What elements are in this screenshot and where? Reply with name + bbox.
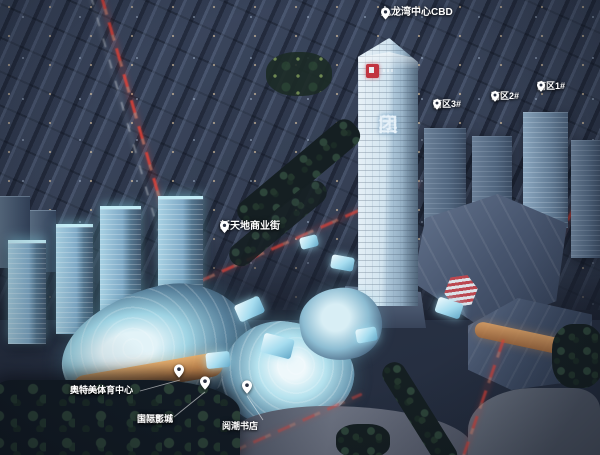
label-text: 九龙湾中心CBD [381, 7, 453, 19]
label-text: 奥特美体育中心 [70, 385, 133, 396]
label-text: 国际影城 [137, 414, 173, 425]
label-text: 新天地商业街 [220, 221, 280, 233]
label-text: 阅潮书店 [222, 421, 258, 432]
aerial-render: 华 发 集 团 九龙湾中心CBD [0, 0, 600, 455]
